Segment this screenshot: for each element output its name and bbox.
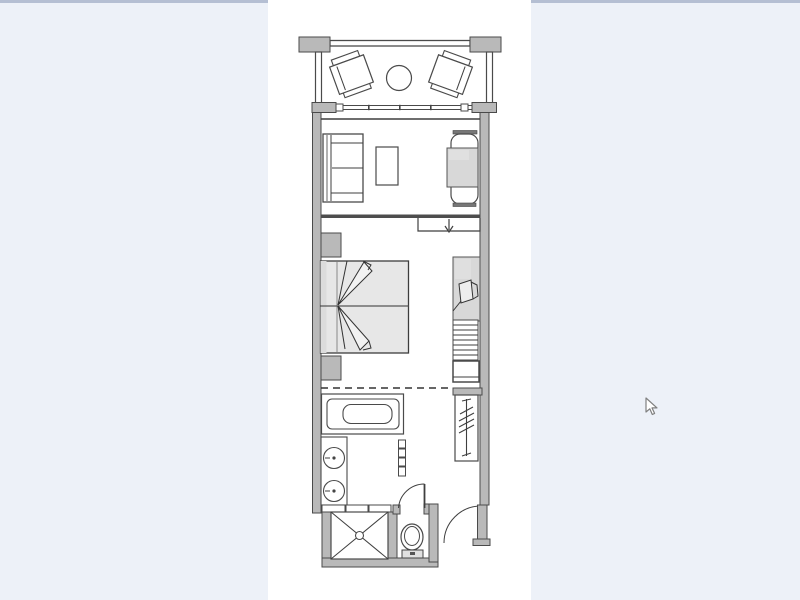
sliding-window	[336, 104, 472, 111]
tile-partition	[399, 440, 406, 476]
vanity-counter	[321, 437, 347, 505]
balcony-side-rail-left	[316, 52, 322, 103]
right-wall	[480, 103, 489, 505]
lower-cabinet	[453, 361, 479, 382]
coffee-table	[376, 147, 398, 185]
living-area	[321, 131, 480, 233]
closet-shelves	[453, 320, 478, 360]
sink-bottom	[324, 481, 345, 502]
toilet	[401, 524, 423, 558]
desktop: { "window": { "kind": "image-viewer-show…	[0, 0, 800, 600]
balcony	[299, 37, 501, 103]
entry-door-swing	[444, 506, 481, 543]
balcony-railing	[330, 41, 470, 47]
balcony-post-left	[299, 37, 330, 52]
entry-arrow-icon	[445, 219, 453, 232]
bedroom	[321, 233, 481, 388]
ladder-shelf	[453, 388, 482, 461]
window-wall-block-right	[472, 103, 497, 113]
nightstand-top	[321, 233, 341, 257]
mouse-cursor	[645, 397, 659, 418]
balcony-post-right	[470, 37, 501, 52]
window-wall-block-left	[312, 103, 336, 113]
balcony-table	[387, 66, 412, 91]
bathroom	[321, 388, 490, 567]
left-wall	[313, 103, 322, 513]
bed	[321, 261, 409, 353]
entry-door	[444, 505, 490, 546]
shower-drain	[356, 532, 364, 540]
floorplan-drawing	[268, 0, 532, 600]
balcony-side-rail-right	[487, 52, 493, 103]
room-divider-wall	[321, 215, 480, 219]
water-closet	[393, 484, 438, 562]
wc-door-swing	[399, 484, 425, 508]
wardrobe	[453, 257, 480, 321]
bathtub	[322, 394, 404, 434]
entry-vestibule	[418, 218, 480, 232]
entry-door-leaf	[478, 505, 488, 543]
desk-with-chair	[447, 131, 478, 207]
sofa	[323, 134, 363, 202]
balcony-lounge-chair-left	[328, 49, 376, 99]
balcony-lounge-chair-right	[427, 49, 475, 99]
sink-top	[324, 448, 345, 469]
nightstand-bottom	[321, 356, 341, 380]
